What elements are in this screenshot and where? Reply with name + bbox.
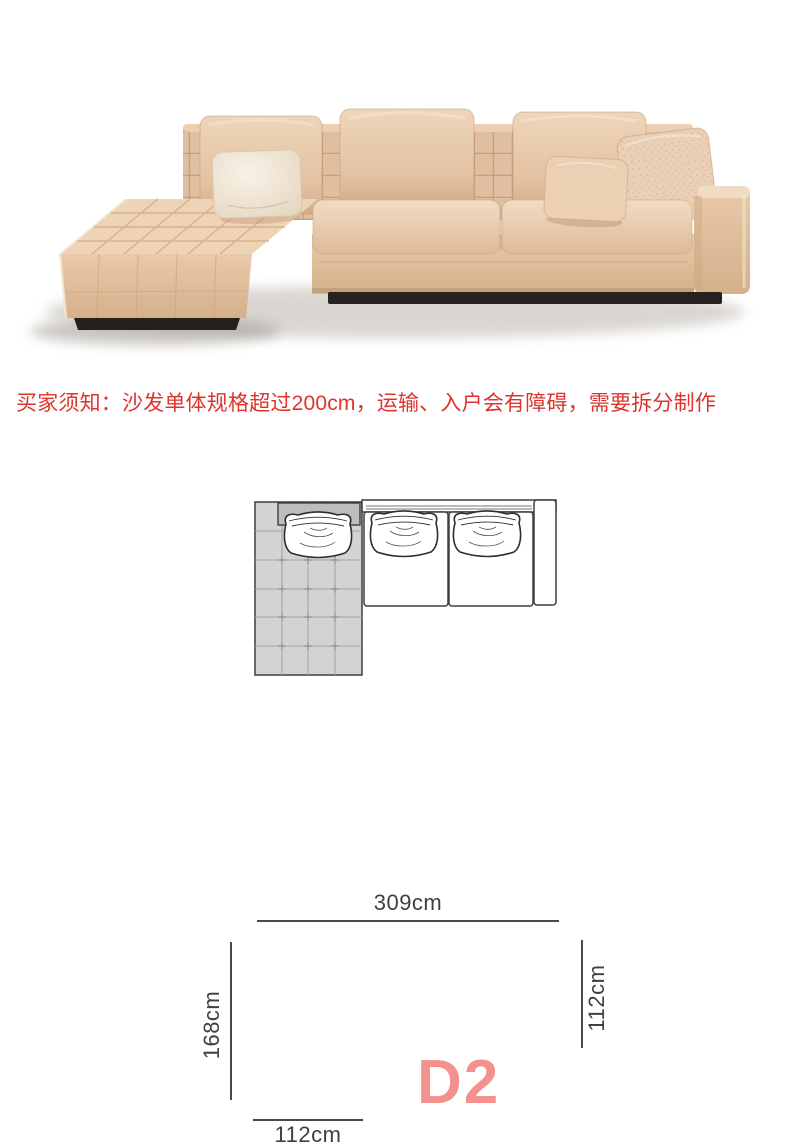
cream-pillow bbox=[212, 149, 302, 225]
topview-pillow-left bbox=[370, 511, 437, 557]
dim-line-chaise-depth bbox=[230, 942, 232, 1100]
dim-label-chaise-width: 112cm bbox=[253, 1123, 363, 1147]
sofa-armrest bbox=[694, 186, 750, 294]
topview-pillow-right bbox=[453, 511, 520, 557]
model-code-label: D2 bbox=[417, 1052, 500, 1114]
chaise-plinth bbox=[74, 318, 240, 330]
buyer-notice-text: 买家须知：沙发单体规格超过200cm，运输、入户会有障碍，需要拆分制作 bbox=[16, 391, 716, 417]
topview-pillow-chaise bbox=[284, 512, 351, 558]
dim-line-total-width bbox=[257, 920, 559, 922]
product-detail-image: 买家须知：沙发单体规格超过200cm，运输、入户会有障碍，需要拆分制作 309c… bbox=[0, 0, 800, 800]
back-cushion-center bbox=[340, 109, 474, 206]
topview-armrest bbox=[534, 500, 556, 605]
small-beige-pillow bbox=[543, 156, 628, 229]
sofa-photo-illustration bbox=[0, 0, 800, 380]
dim-label-seat-depth: 112cm bbox=[585, 965, 609, 1032]
seat-cushions bbox=[313, 200, 692, 254]
dim-label-chaise-depth: 168cm bbox=[200, 991, 224, 1060]
dim-line-seat-depth bbox=[581, 940, 583, 1048]
dim-line-chaise-width bbox=[253, 1119, 363, 1121]
dim-label-total-width: 309cm bbox=[257, 891, 559, 915]
sofa-plinth bbox=[328, 292, 722, 304]
sofa-top-view-drawing bbox=[250, 495, 565, 680]
